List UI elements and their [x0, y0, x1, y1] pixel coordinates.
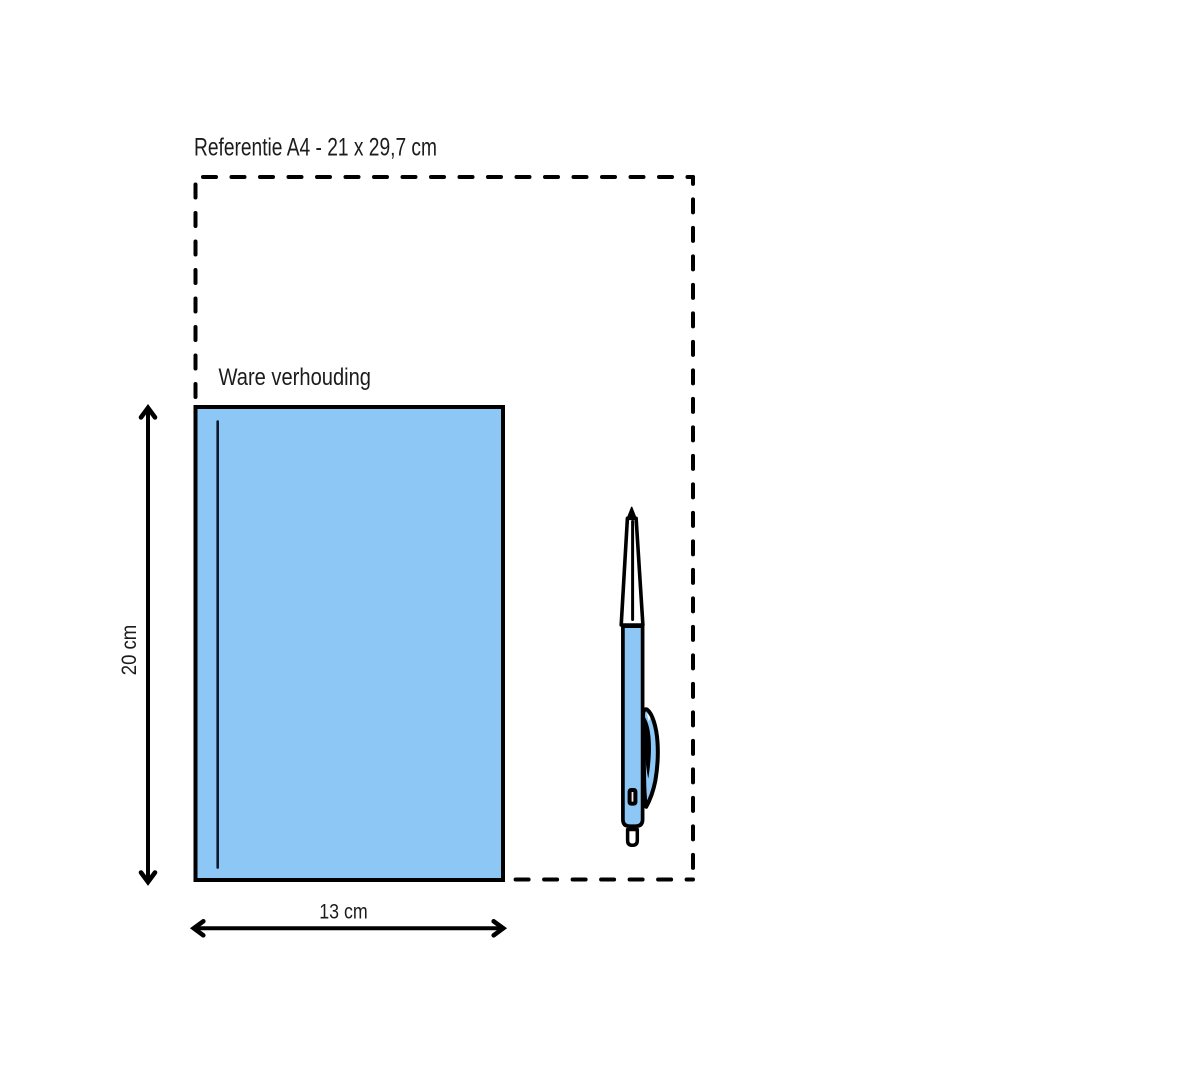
svg-text:Ware verhouding: Ware verhouding — [219, 364, 372, 391]
svg-text:Referentie A4 - 21 x 29,7 cm: Referentie A4 - 21 x 29,7 cm — [194, 134, 437, 162]
svg-text:20 cm: 20 cm — [118, 625, 141, 676]
svg-text:13 cm: 13 cm — [319, 901, 368, 924]
